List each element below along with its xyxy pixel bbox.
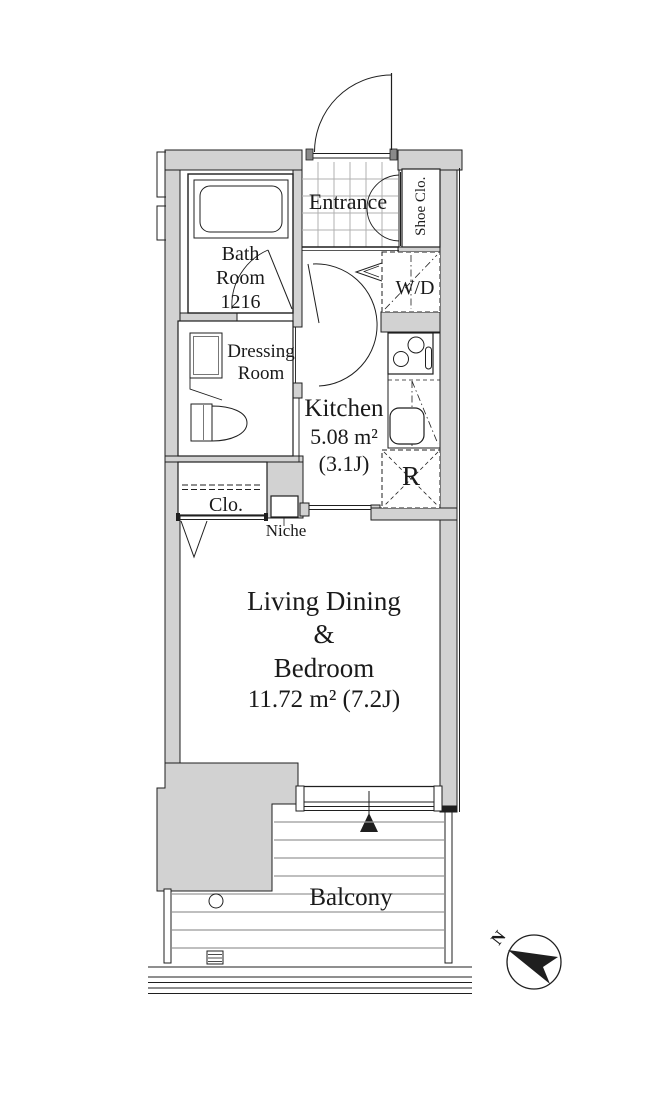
kitchen-living-opening — [309, 506, 371, 510]
washer-dryer-label: W/D — [388, 277, 442, 299]
kitchen-area-jo: (3.1J) — [298, 452, 390, 476]
living-label-line1: Living Dining — [214, 587, 434, 617]
living-label-line2: & — [214, 620, 434, 650]
door-jamb-right — [390, 149, 397, 160]
dressing-room-label-line2: Room — [206, 363, 316, 385]
floor-plan: Entrance Shoe Clo. Bath Room 1216 W/D Dr… — [0, 0, 656, 1098]
kitchen-area-m2: 5.08 m² — [298, 425, 390, 449]
wall-right-end-cap — [440, 806, 457, 812]
closet-track-cap-left — [176, 513, 180, 521]
balcony-post-left — [164, 889, 171, 963]
corridor-door-leaf — [308, 264, 319, 323]
entry-door-swing-arc — [315, 75, 392, 152]
bathroom-label-line2: Room — [193, 266, 288, 290]
living-label-line3: Bedroom — [214, 654, 434, 684]
bathtub-inner — [200, 186, 282, 232]
wall-kitchen-living — [371, 508, 457, 520]
closet-label: Clo. — [199, 494, 253, 516]
closet-track-cap-right — [264, 513, 268, 521]
wall-right — [440, 170, 457, 812]
wall-dressing-closet — [165, 456, 303, 462]
dressing-room-label: Dressing Room — [206, 341, 316, 384]
window-post-right — [434, 786, 442, 811]
wall-wd-counter — [381, 312, 440, 332]
door-jamb-left — [306, 149, 313, 160]
kitchen-label: Kitchen — [300, 395, 388, 423]
wall-shoe-bottom — [398, 247, 440, 252]
niche-label: Niche — [258, 522, 314, 541]
kitchen-sink — [390, 408, 424, 444]
balcony-drain-circle — [209, 894, 223, 908]
balcony-post-right — [445, 812, 452, 963]
floor-plan-drawing — [0, 0, 656, 1098]
wall-bottom-left-block — [157, 763, 298, 891]
living-label-line4: 11.72 m² (7.2J) — [204, 686, 444, 714]
shoe-closet-label: Shoe Clo. — [413, 169, 430, 243]
balcony-label: Balcony — [299, 884, 403, 912]
toilet-tank — [191, 404, 212, 441]
dressing-room-label-line1: Dressing — [206, 341, 316, 363]
bathroom-label: Bath Room 1216 — [193, 242, 288, 314]
niche-box — [271, 496, 298, 517]
wall-top-right — [398, 150, 462, 170]
ground-lines — [148, 967, 472, 994]
corridor-door-arc — [313, 264, 377, 386]
wall-top-left — [165, 150, 302, 170]
bathroom-label-line3: 1216 — [193, 290, 288, 314]
compass — [507, 935, 561, 989]
wall-bath-dressing — [180, 313, 237, 321]
wd-folding-door-chevron — [356, 263, 382, 281]
window-post-left — [296, 786, 304, 811]
closet-folding-door-mark — [181, 521, 207, 557]
balcony-drain-grate — [207, 951, 223, 964]
bathroom-label-line1: Bath — [193, 242, 288, 266]
refrigerator-label: R — [394, 462, 428, 492]
wall-post-kitchen-left — [300, 503, 309, 516]
entrance-label: Entrance — [300, 190, 396, 214]
entrance-area — [302, 73, 401, 251]
